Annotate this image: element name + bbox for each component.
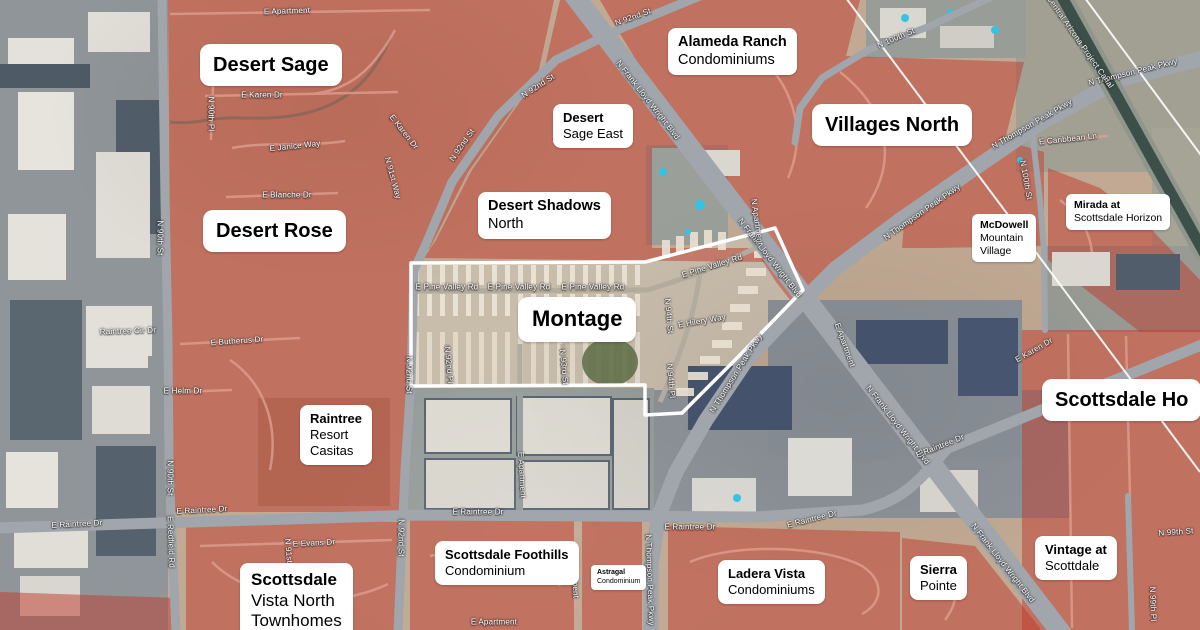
- neighborhood-name-line: Casitas: [310, 443, 362, 459]
- neighborhood-name-line: Sierra: [920, 562, 957, 578]
- neighborhood-name-line: Condominiums: [728, 582, 815, 598]
- neighborhood-label-desert-sage-east[interactable]: DesertSage East: [553, 104, 633, 148]
- neighborhood-label-sierra-pointe[interactable]: SierraPointe: [910, 556, 967, 600]
- neighborhood-name-line: Astragal: [597, 568, 640, 577]
- neighborhood-name-line: Scottsdale Horizon: [1074, 212, 1162, 225]
- neighborhood-name-line: North: [488, 216, 601, 234]
- neighborhood-name-line: Desert Sage: [213, 53, 329, 77]
- neighborhood-name-line: Scottsdale Ho: [1055, 388, 1188, 412]
- neighborhood-label-scottsdale-vista-north[interactable]: ScottsdaleVista NorthTownhomes: [240, 563, 353, 630]
- neighborhood-name-line: Ladera Vista: [728, 566, 815, 582]
- neighborhood-label-desert-shadows-north[interactable]: Desert ShadowsNorth: [478, 192, 611, 239]
- neighborhood-label-mirada-at-scottsdale-horizon[interactable]: Mirada atScottsdale Horizon: [1066, 194, 1170, 230]
- neighborhood-label-ladera-vista[interactable]: Ladera VistaCondominiums: [718, 560, 825, 604]
- neighborhood-label-desert-rose[interactable]: Desert Rose: [203, 210, 346, 252]
- neighborhood-label-mcdowell-mountain-village[interactable]: McDowellMountainVillage: [972, 214, 1036, 262]
- neighborhood-name-line: Montage: [532, 306, 622, 333]
- neighborhood-label-scottsdale-foothills[interactable]: Scottsdale FoothillsCondominium: [435, 541, 579, 585]
- neighborhood-name-line: Scottsdale Foothills: [445, 547, 569, 563]
- neighborhood-name-line: Alameda Ranch: [678, 34, 787, 52]
- neighborhood-name-line: Condominium: [445, 563, 569, 579]
- neighborhood-label-scottsdale-horizon[interactable]: Scottsdale Ho: [1042, 379, 1200, 421]
- neighborhood-name-line: Mountain: [980, 232, 1028, 245]
- neighborhood-name-line: Villages North: [825, 113, 959, 137]
- neighborhood-label-villages-north[interactable]: Villages North: [812, 104, 972, 146]
- neighborhood-name-line: Pointe: [920, 578, 957, 594]
- neighborhood-name-line: Sage East: [563, 126, 623, 142]
- neighborhood-name-line: Vintage at: [1045, 542, 1107, 558]
- neighborhood-label-vintage-at-scottdale[interactable]: Vintage atScottdale: [1035, 536, 1117, 580]
- neighborhood-labels-layer: Desert SageAlameda RanchCondominiumsVill…: [0, 0, 1200, 630]
- neighborhood-name-line: Townhomes: [251, 611, 342, 630]
- neighborhood-label-alameda-ranch[interactable]: Alameda RanchCondominiums: [668, 28, 797, 75]
- neighborhood-name-line: Scottdale: [1045, 558, 1107, 574]
- neighborhood-name-line: Desert Shadows: [488, 198, 601, 216]
- neighborhood-name-line: Raintree: [310, 411, 362, 427]
- neighborhood-name-line: Resort: [310, 427, 362, 443]
- neighborhood-name-line: Desert Rose: [216, 219, 333, 243]
- neighborhood-label-raintree-resort-casitas[interactable]: RaintreeResortCasitas: [300, 405, 372, 465]
- neighborhood-name-line: Scottsdale: [251, 570, 342, 591]
- neighborhood-name-line: Condominium: [597, 577, 640, 586]
- neighborhood-name-line: Village: [980, 245, 1028, 258]
- neighborhood-name-line: Mirada at: [1074, 199, 1162, 212]
- neighborhood-label-montage[interactable]: Montage: [518, 297, 636, 342]
- neighborhood-name-line: Condominiums: [678, 52, 787, 70]
- neighborhood-name-line: Vista North: [251, 591, 342, 612]
- neighborhood-label-astragal[interactable]: AstragalCondominium: [591, 565, 646, 590]
- neighborhood-label-desert-sage[interactable]: Desert Sage: [200, 44, 342, 86]
- neighborhood-name-line: Desert: [563, 110, 623, 126]
- neighborhood-name-line: McDowell: [980, 219, 1028, 232]
- satellite-map[interactable]: E ApartmentN 92nd StN 92nd StN 92nd StN …: [0, 0, 1200, 630]
